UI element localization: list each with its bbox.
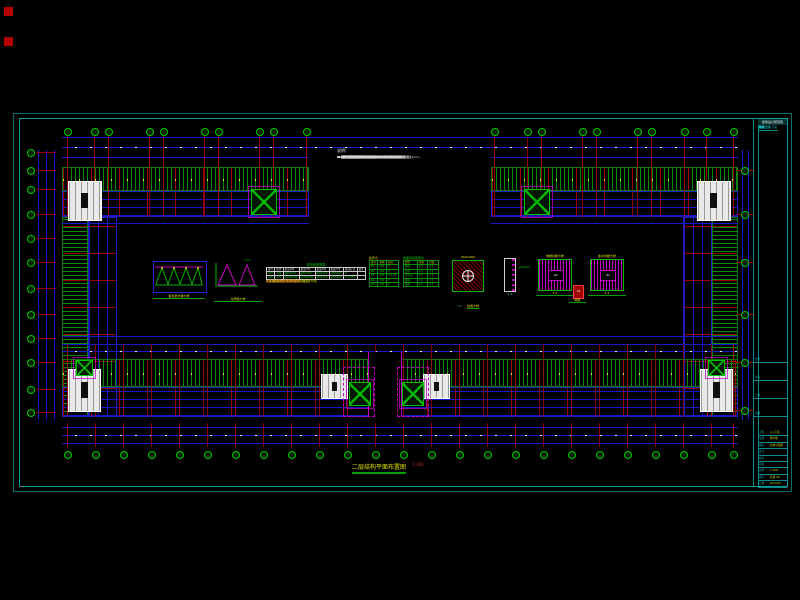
- shaft-1-title: 电梯井壁大样: [536, 254, 574, 258]
- axis-bubble: [524, 128, 532, 136]
- kv-value: [770, 462, 787, 467]
- axis-bubble: [27, 259, 35, 267]
- axis-bubble: [491, 128, 499, 136]
- kv-label: 项目: [758, 436, 770, 441]
- axis-bubble: [120, 451, 128, 459]
- axis-bubble: [215, 128, 223, 136]
- shaft-1-label: 3-3: [536, 291, 574, 296]
- cap-label: 柱帽大样: [467, 304, 479, 309]
- shaft-wall-detail-2: 集水坑壁大样 Q2 4-4: [588, 254, 626, 296]
- axis-bubble: [232, 451, 240, 459]
- wall-section-detail: φ8@200 2-2: [500, 258, 534, 296]
- axis-bubble: [27, 359, 35, 367]
- titleblock-section-label-3: 日期: [755, 393, 760, 397]
- titleblock-section-label-2: 专业: [755, 375, 760, 379]
- truss-detail-label: 板负筋支撑大样: [153, 294, 205, 299]
- grid-line-tick: [36, 314, 56, 315]
- axis-bubble: [741, 359, 749, 367]
- axis-bubble: [27, 409, 35, 417]
- titleblock-section-line-4: [753, 416, 787, 417]
- notes-title: 说明:: [337, 148, 445, 154]
- axis-bubble: [27, 335, 35, 343]
- axis-bubble: [708, 451, 716, 459]
- grid-line-tick: [711, 423, 712, 447]
- rebar-note-line: 4.施工时严禁踩踏板面负筋。: [266, 280, 302, 284]
- kv-label: 图号: [758, 475, 770, 480]
- grid-line: [599, 344, 600, 417]
- grid-line-tick: [218, 137, 219, 217]
- table-cell: 150: [378, 283, 386, 287]
- dim-chain-top-3r: [491, 157, 738, 158]
- grid-line-tick: [36, 170, 56, 171]
- axis-bubble: [741, 259, 749, 267]
- grid-line-tick: [543, 423, 544, 447]
- grid-line-tick: [627, 423, 628, 447]
- grid-line-tick: [733, 423, 734, 447]
- axis-bubble: [146, 128, 154, 136]
- shaft-bottom-left-corner: [76, 360, 93, 376]
- kv-label: 工程: [758, 430, 770, 435]
- table-cell: H: [386, 283, 398, 287]
- grid-line-tick: [515, 423, 516, 447]
- cap-labels: 1-1 柱帽大样: [447, 292, 489, 311]
- grid-line-tick: [291, 423, 292, 447]
- shaft-bottom-right-corner: [708, 360, 725, 376]
- column-cap-detail: 900×900 1-1 柱帽大样: [447, 255, 489, 311]
- axis-bubble: [596, 451, 604, 459]
- titleblock-section-line-2: [753, 380, 787, 381]
- axis-bubble: [27, 149, 35, 157]
- red-marker-1: [4, 7, 13, 16]
- axis-bubble: [593, 128, 601, 136]
- grid-line-tick: [36, 214, 56, 215]
- grid-line-tick: [494, 137, 495, 217]
- axis-bubble: [64, 128, 72, 136]
- grid-line-tick: [163, 137, 164, 217]
- grid-line-tick: [235, 423, 236, 447]
- hidden-column-detail: GZ: [573, 285, 584, 299]
- axis-bubble: [634, 128, 642, 136]
- elevator-shaft-top-left: [251, 189, 277, 215]
- slab-rebar-schedule: 现浇板配筋表 编号板厚板底X向板底Y向板面X向板面Y向板面标高备注LB1100φ…: [266, 262, 366, 280]
- axis-bubble: [456, 451, 464, 459]
- axis-bubble: [204, 451, 212, 459]
- grid-line-tick: [582, 137, 583, 217]
- grid-line: [319, 344, 320, 417]
- table-cell: 屋面: [404, 283, 418, 287]
- bar-chair-dim: h-30: [244, 259, 250, 262]
- axis-bubble: [512, 451, 520, 459]
- dim-chain-mid-2: [62, 344, 738, 345]
- truss-detail: [153, 261, 207, 293]
- grid-line-tick: [403, 423, 404, 447]
- axis-bubble: [27, 186, 35, 194]
- kv-value: 教学楼: [770, 436, 787, 441]
- dim-chain-left-1: [38, 150, 39, 420]
- axis-bubble: [316, 451, 324, 459]
- dim-chain-mid-1: [62, 336, 738, 337]
- cap-dim-label: 900×900: [447, 255, 489, 259]
- grid-line: [571, 344, 572, 417]
- shaft-wall-detail-1: 电梯井壁大样 Q1 3-3: [536, 254, 574, 296]
- kv-value: 结构平面图: [770, 443, 787, 448]
- axis-bubble: [260, 451, 268, 459]
- table-cell: 板厚: [275, 268, 283, 272]
- axis-bubble: [303, 128, 311, 136]
- dim-chain-inner-l: [62, 223, 309, 224]
- grid-line: [207, 344, 208, 417]
- grid-line-tick: [459, 423, 460, 447]
- titleblock-bottom-table: 工程××工程项目教学楼图名结构平面图设计校对审核比例1:100图号结施-08日期…: [758, 430, 787, 488]
- grid-line-tick: [151, 423, 152, 447]
- axis-bubble: [540, 451, 548, 459]
- stair-core-top-left: [68, 181, 102, 221]
- grid-line: [515, 344, 516, 417]
- shaft-1-mark: Q1: [548, 270, 564, 281]
- bar-chair-drawing: [214, 259, 262, 291]
- shaft-2-title: 集水坑壁大样: [588, 254, 626, 258]
- dim-chain-inner-r: [491, 223, 738, 224]
- axis-bubble: [344, 451, 352, 459]
- shaft-1-drawing: Q1: [538, 259, 572, 291]
- titleblock-section-label-1: 会签: [755, 357, 760, 361]
- slab-thickness-table: 板厚表 编号板厚标高B1100HB2110HB3120H-0.05B4130HB…: [369, 256, 399, 287]
- axis-bubble: [27, 235, 35, 243]
- grid-line: [627, 344, 628, 417]
- table-cell: 5.0: [417, 283, 428, 287]
- axis-bubble: [400, 451, 408, 459]
- grid-line: [487, 344, 488, 417]
- load-table: 楼面荷载取值表 部位恒载活载楼面4.02.0走廊4.02.5卫生间4.52.5楼…: [403, 256, 439, 287]
- grid-line-tick: [36, 189, 56, 190]
- bar-chair-detail: h-30: [214, 259, 262, 295]
- table-cell: [357, 276, 365, 280]
- axis-bubble: [288, 451, 296, 459]
- axis-bubble: [27, 211, 35, 219]
- shaft-2-drawing: Q2: [590, 259, 624, 291]
- drawing-title-group: 二层结构平面布置图 1:100: [352, 462, 424, 474]
- axis-bubble: [652, 451, 660, 459]
- grid-line-tick: [36, 238, 56, 239]
- axis-bubble: [680, 451, 688, 459]
- axis-bubble: [160, 128, 168, 136]
- grid-line-tick: [599, 423, 600, 447]
- grid-line-tick: [651, 137, 652, 217]
- grid-line-tick: [36, 362, 56, 363]
- truss-detail-drawing: [154, 262, 204, 290]
- grid-line-tick: [204, 137, 205, 217]
- grid-line-tick: [36, 152, 56, 153]
- kv-label: 设计: [758, 449, 770, 454]
- grid-line: [291, 344, 292, 417]
- table-cell: H-0.050: [343, 276, 357, 280]
- grid-line-tick: [108, 137, 109, 217]
- axis-bubble: [27, 167, 35, 175]
- shaft-2-mark: Q2: [600, 270, 616, 281]
- grid-line-tick: [36, 338, 56, 339]
- kv-value: ××工程: [770, 430, 787, 435]
- grid-line-tick: [306, 137, 307, 217]
- table-cell: φ8@200: [329, 276, 343, 280]
- axis-bubble: [428, 451, 436, 459]
- titleblock-section-line-1: [753, 362, 787, 363]
- grid-line-tick: [263, 423, 264, 447]
- axis-bubble: [105, 128, 113, 136]
- grid-line: [683, 344, 684, 417]
- table-cell: 板面标高: [343, 268, 357, 272]
- axis-bubble: [27, 311, 35, 319]
- axis-bubble: [624, 451, 632, 459]
- axis-bubble: [372, 451, 380, 459]
- section-rebar-text: φ8@200: [519, 266, 530, 269]
- grid-line-tick: [123, 423, 124, 447]
- titleblock-kv-row: 日期2013.06: [758, 481, 787, 487]
- axis-bubble: [256, 128, 264, 136]
- green-table-1: 编号板厚标高B1100HB2110HB3120H-0.05B4130HB5150…: [369, 260, 399, 287]
- cap-detail-drawing: [452, 260, 484, 292]
- table-cell: B5: [370, 283, 378, 287]
- general-notes-block: 说明: 1. 本图尺寸除标高以米计外，其余均以毫米计。2. 本层结构标高为 3.…: [337, 148, 445, 155]
- kv-value: 1:100: [770, 468, 787, 473]
- grid-line: [459, 344, 460, 417]
- axis-bubble: [27, 386, 35, 394]
- kv-label: 图名: [758, 443, 770, 448]
- axis-bubble: [27, 285, 35, 293]
- section-rect: [504, 258, 516, 292]
- kv-label: 校对: [758, 456, 770, 461]
- titleblock-section-line-3: [753, 398, 787, 399]
- dim-chain-left-2: [46, 150, 47, 420]
- axis-bubble: [91, 128, 99, 136]
- section-label: 2-2: [500, 292, 520, 296]
- grid-line-tick: [36, 288, 56, 289]
- grid-line-tick: [319, 423, 320, 447]
- axis-bubble: [92, 451, 100, 459]
- axis-bubble: [579, 128, 587, 136]
- axis-bubble: [201, 128, 209, 136]
- dim-chain-bottom-2: [62, 435, 738, 436]
- dim-chain-right-1: [742, 150, 743, 420]
- note-line: 20. 未尽事宜详见结构设计总说明。: [337, 155, 385, 159]
- grid-line-tick: [149, 137, 150, 217]
- grid-line-tick: [571, 423, 572, 447]
- grid-line-tick: [179, 423, 180, 447]
- shaft-outline-right: [397, 367, 429, 417]
- grid-line-tick: [655, 423, 656, 447]
- grid-line: [733, 344, 734, 417]
- table-cell: φ8@200: [329, 272, 343, 276]
- axis-bubble: [703, 128, 711, 136]
- axis-bubble: [648, 128, 656, 136]
- grid-line-tick: [95, 423, 96, 447]
- titleblock-row: 日期: [758, 125, 765, 131]
- stair-core-top-right: [697, 181, 731, 221]
- kv-value: 结施-08: [770, 475, 787, 480]
- table-cell: 0.5: [428, 283, 439, 287]
- kv-label: 审核: [758, 462, 770, 467]
- axis-bubble: [741, 311, 749, 319]
- titleblock-divider-1: [753, 118, 754, 486]
- kv-value: [770, 456, 787, 461]
- dim-chain-left-3: [54, 150, 55, 420]
- grid-line: [543, 344, 544, 417]
- axis-bubble: [568, 451, 576, 459]
- drawing-scale: 1:100: [412, 462, 424, 467]
- grid-line-tick: [36, 412, 56, 413]
- cap-section-number: 1-1: [457, 304, 462, 308]
- grid-line-tick: [36, 389, 56, 390]
- grid-line: [263, 344, 264, 417]
- grid-line-tick: [683, 423, 684, 447]
- axis-bubble: [538, 128, 546, 136]
- axis-bubble: [741, 211, 749, 219]
- elevator-shaft-top-right: [524, 189, 550, 215]
- cap-circle: [462, 270, 474, 282]
- axis-bubble: [176, 451, 184, 459]
- grid-line-tick: [207, 423, 208, 447]
- green-table-2: 部位恒载活载楼面4.02.0走廊4.02.5卫生间4.52.5楼梯7.03.5屋…: [403, 260, 439, 287]
- shaft-outline-left: [343, 367, 375, 417]
- grid-line-tick: [375, 423, 376, 447]
- grid-line: [235, 344, 236, 417]
- axis-bubble: [741, 167, 749, 175]
- table-cell: φ8@200: [315, 272, 329, 276]
- grid-line: [123, 344, 124, 417]
- dim-chain-bottom-3: [62, 443, 738, 444]
- shaft-2-label: 4-4: [588, 291, 626, 296]
- kv-label: 日期: [758, 481, 770, 486]
- drawing-title: 二层结构平面布置图: [352, 462, 406, 474]
- red-marker-2: [4, 37, 13, 46]
- bar-chair-label: 马凳筋大样: [214, 297, 262, 302]
- grid-line-tick: [347, 423, 348, 447]
- axis-bubble: [730, 128, 738, 136]
- axis-bubble: [64, 451, 72, 459]
- dim-chain-bottom-1: [62, 427, 738, 428]
- hidden-column-label: 暗柱: [569, 298, 586, 303]
- kv-value: [770, 449, 787, 454]
- grid-line: [655, 344, 656, 417]
- dim-chain-right-2: [748, 150, 749, 420]
- grid-line-tick: [67, 423, 68, 447]
- axis-bubble: [148, 451, 156, 459]
- cad-drawing-canvas: 说明: 1. 本图尺寸除标高以米计外，其余均以毫米计。2. 本层结构标高为 3.…: [0, 0, 800, 600]
- axis-bubble: [270, 128, 278, 136]
- kv-value: 2013.06: [770, 481, 787, 486]
- grid-line-tick: [684, 137, 685, 217]
- grid-line-tick: [487, 423, 488, 447]
- titleblock-section-label-4: 出图: [755, 411, 760, 415]
- grid-line-tick: [431, 423, 432, 447]
- axis-bubble: [484, 451, 492, 459]
- dim-chain-top-3l: [62, 157, 309, 158]
- grid-line-tick: [36, 262, 56, 263]
- axis-bubble: [730, 451, 738, 459]
- axis-bubble: [681, 128, 689, 136]
- axis-bubble: [741, 407, 749, 415]
- grid-line: [151, 344, 152, 417]
- grid-line-tick: [733, 137, 734, 217]
- grid-line-tick: [596, 137, 597, 217]
- kv-label: 比例: [758, 468, 770, 473]
- grid-line: [179, 344, 180, 417]
- grid-line-tick: [637, 137, 638, 217]
